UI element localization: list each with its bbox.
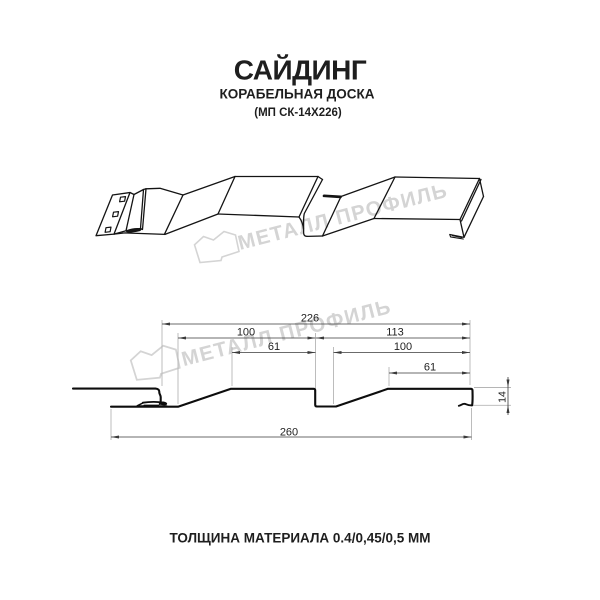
svg-text:ТОЛЩИНА МАТЕРИАЛА 0.4/0,45/0,5: ТОЛЩИНА МАТЕРИАЛА 0.4/0,45/0,5 ММ <box>170 531 431 546</box>
svg-text:САЙДИНГ: САЙДИНГ <box>234 54 367 86</box>
svg-text:100: 100 <box>394 341 412 353</box>
svg-text:14: 14 <box>497 391 509 403</box>
svg-text:113: 113 <box>386 327 404 339</box>
svg-text:61: 61 <box>268 341 280 353</box>
svg-text:226: 226 <box>301 313 319 325</box>
svg-text:(МП СК-14Х226): (МП СК-14Х226) <box>254 107 342 119</box>
svg-text:61: 61 <box>424 362 436 374</box>
svg-text:КОРАБЕЛЬНАЯ ДОСКА: КОРАБЕЛЬНАЯ ДОСКА <box>220 87 375 102</box>
svg-text:260: 260 <box>280 427 298 439</box>
svg-text:100: 100 <box>237 327 255 339</box>
